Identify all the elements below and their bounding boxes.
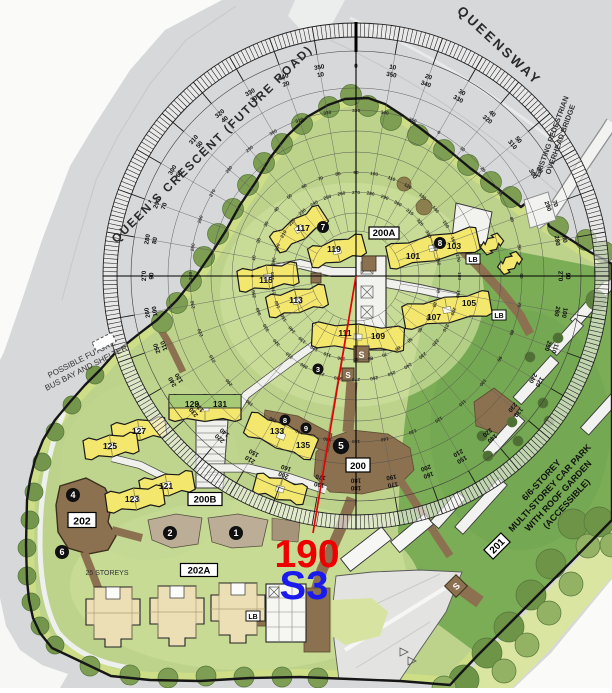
svg-text:90: 90 xyxy=(564,273,571,280)
svg-text:9: 9 xyxy=(304,424,308,433)
svg-text:LB: LB xyxy=(494,313,503,320)
svg-text:202: 202 xyxy=(73,515,91,527)
svg-text:3: 3 xyxy=(316,365,320,374)
svg-text:0: 0 xyxy=(354,63,358,70)
svg-text:8: 8 xyxy=(283,416,287,425)
svg-text:270: 270 xyxy=(352,190,360,196)
svg-text:123: 123 xyxy=(125,494,139,504)
svg-text:6: 6 xyxy=(59,547,64,557)
svg-text:330: 330 xyxy=(352,108,360,114)
svg-text:1: 1 xyxy=(233,528,238,538)
svg-text:4: 4 xyxy=(70,490,75,500)
svg-text:240: 240 xyxy=(188,272,194,280)
svg-text:103: 103 xyxy=(447,241,461,251)
svg-text:LB: LB xyxy=(468,257,477,264)
svg-text:S3: S3 xyxy=(280,564,329,608)
svg-text:90: 90 xyxy=(353,356,359,362)
svg-text:270: 270 xyxy=(556,271,563,282)
svg-text:S: S xyxy=(345,371,351,380)
svg-text:105: 105 xyxy=(462,298,476,308)
svg-text:135: 135 xyxy=(296,440,310,450)
svg-text:113: 113 xyxy=(289,295,303,305)
svg-text:0: 0 xyxy=(436,275,442,278)
svg-text:7: 7 xyxy=(321,223,326,232)
svg-text:133: 133 xyxy=(270,426,284,436)
svg-text:0: 0 xyxy=(250,274,256,277)
svg-text:121: 121 xyxy=(159,481,173,491)
svg-text:117: 117 xyxy=(296,223,310,233)
svg-text:60: 60 xyxy=(518,273,524,279)
svg-text:25 STOREYS: 25 STOREYS xyxy=(85,570,128,577)
svg-text:127: 127 xyxy=(132,426,146,436)
svg-text:LB: LB xyxy=(248,614,257,621)
svg-text:115: 115 xyxy=(259,275,273,285)
svg-text:8: 8 xyxy=(438,239,443,248)
svg-text:270: 270 xyxy=(352,376,360,382)
svg-text:2: 2 xyxy=(167,528,172,538)
svg-text:200B: 200B xyxy=(194,494,217,505)
svg-text:150: 150 xyxy=(352,438,360,444)
svg-text:125: 125 xyxy=(103,441,117,451)
svg-text:131: 131 xyxy=(213,399,227,409)
svg-text:180: 180 xyxy=(456,272,462,280)
svg-text:111: 111 xyxy=(338,328,352,338)
svg-text:90: 90 xyxy=(353,170,359,176)
svg-text:90: 90 xyxy=(149,272,156,279)
svg-text:129: 129 xyxy=(185,399,199,409)
svg-text:200: 200 xyxy=(350,461,366,472)
svg-text:119: 119 xyxy=(327,244,341,254)
svg-text:180: 180 xyxy=(350,484,361,491)
svg-text:200A: 200A xyxy=(373,228,396,239)
svg-text:202A: 202A xyxy=(188,565,211,576)
svg-text:109: 109 xyxy=(371,331,385,341)
svg-text:270: 270 xyxy=(141,270,148,281)
svg-text:101: 101 xyxy=(406,251,420,261)
svg-text:180: 180 xyxy=(350,476,361,483)
svg-text:5: 5 xyxy=(338,441,344,452)
svg-text:107: 107 xyxy=(427,312,441,322)
